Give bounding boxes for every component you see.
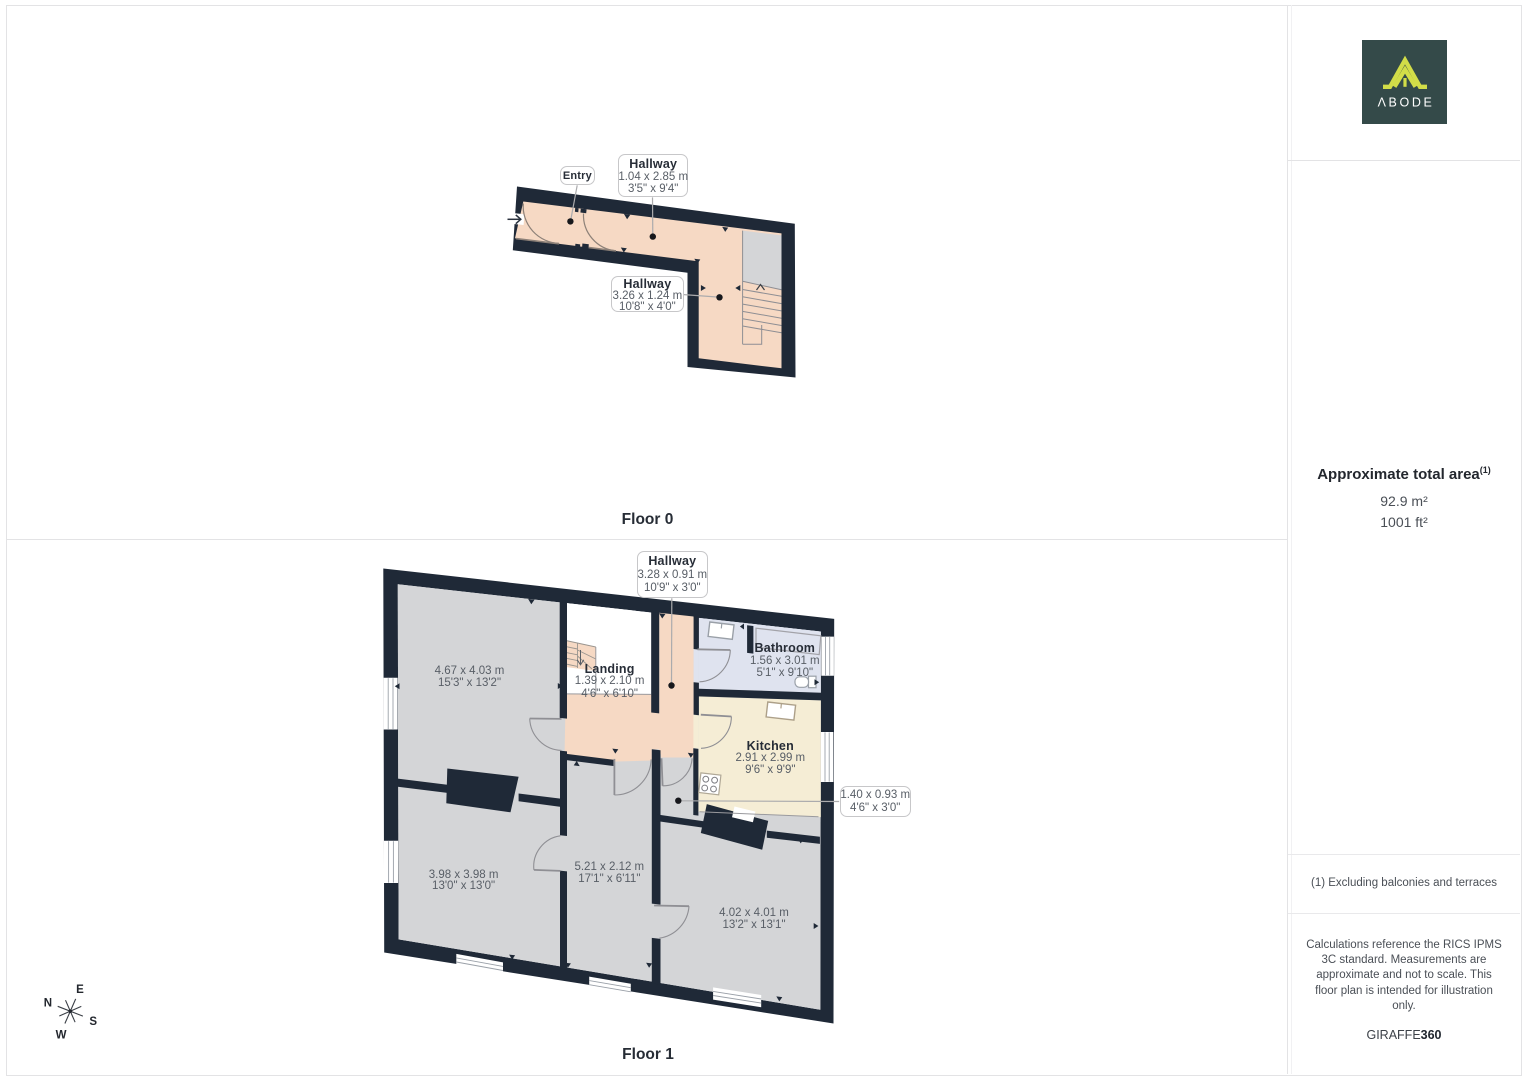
svg-text:S: S <box>89 1016 97 1028</box>
svg-text:N: N <box>44 997 52 1009</box>
svg-text:E: E <box>76 984 84 996</box>
svg-text:ΛBODE: ΛBODE <box>1378 96 1435 110</box>
svg-text:W: W <box>56 1030 67 1042</box>
